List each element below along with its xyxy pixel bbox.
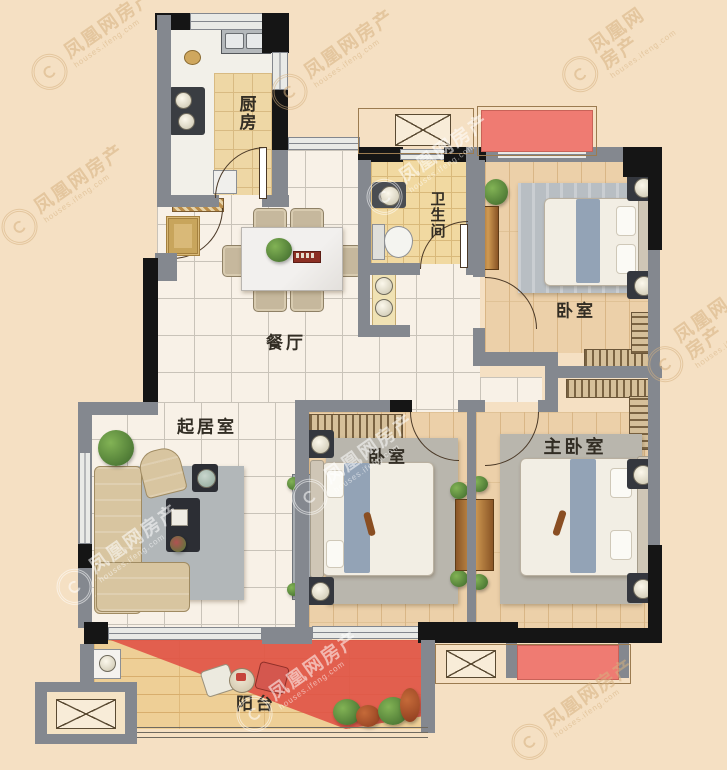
table-plant bbox=[266, 238, 292, 262]
wall bbox=[648, 147, 662, 250]
balcony-plant-autumn bbox=[356, 705, 380, 727]
wall bbox=[295, 412, 309, 628]
bath-washbasin bbox=[380, 186, 400, 206]
watermark-domain: houses.ifeng.com bbox=[42, 158, 133, 225]
bedroom-middle-headboard bbox=[310, 460, 324, 578]
wall bbox=[358, 325, 410, 337]
watermark-logo-icon bbox=[504, 717, 554, 767]
pillow bbox=[610, 530, 632, 560]
stove-burner-2 bbox=[178, 113, 195, 130]
watermark-brand: 凤凰网房产 bbox=[31, 141, 128, 218]
wall bbox=[648, 250, 660, 365]
wall bbox=[143, 258, 158, 412]
kitchen-sink-basin-left bbox=[225, 33, 244, 49]
sofa-chaise bbox=[96, 562, 190, 612]
tray-cups bbox=[296, 253, 316, 258]
window bbox=[272, 52, 288, 90]
stove-burner-1 bbox=[175, 92, 192, 109]
wall bbox=[358, 263, 420, 275]
watermark-logo-icon bbox=[555, 49, 605, 99]
watermark: 凤凰网房产houses.ifeng.com bbox=[552, 0, 679, 104]
pillow bbox=[616, 244, 636, 274]
wall bbox=[467, 412, 476, 628]
window bbox=[288, 137, 360, 150]
living-plant bbox=[98, 430, 134, 466]
wall bbox=[84, 622, 108, 644]
master-blanket bbox=[570, 459, 596, 573]
washing-machine-door bbox=[99, 655, 116, 672]
wall bbox=[390, 400, 412, 412]
coffee-table-tray bbox=[171, 509, 188, 526]
room-label-master: 主卧室 bbox=[544, 433, 607, 459]
wall bbox=[358, 160, 371, 275]
flower-bed bbox=[481, 110, 593, 152]
corridor-pocket-floor bbox=[480, 377, 542, 402]
wall bbox=[538, 400, 558, 412]
ac-unit-box bbox=[446, 650, 496, 678]
nightstand-lamp bbox=[311, 582, 330, 601]
balcony-plant-autumn bbox=[400, 688, 420, 722]
balcony-sliding-door bbox=[108, 627, 262, 640]
wall bbox=[157, 195, 219, 207]
niche-basin-2 bbox=[375, 299, 393, 317]
wall bbox=[458, 400, 485, 412]
wall bbox=[556, 366, 662, 378]
room-label-living: 起居室 bbox=[177, 413, 237, 438]
window bbox=[190, 13, 264, 30]
balcony-table-items bbox=[236, 673, 246, 681]
wall bbox=[157, 15, 171, 197]
wall bbox=[272, 150, 288, 197]
room-label-balcony: 阳台 bbox=[236, 690, 276, 715]
entry-rug bbox=[166, 216, 200, 256]
niche-basin-1 bbox=[375, 277, 393, 295]
side-table-top bbox=[197, 469, 216, 488]
pillow bbox=[326, 470, 344, 498]
plant bbox=[450, 570, 468, 587]
kitchen-bowl bbox=[184, 50, 201, 65]
wall bbox=[514, 628, 660, 643]
coffee-table-plant bbox=[170, 536, 186, 552]
wall bbox=[648, 365, 660, 545]
watermark-logo-icon bbox=[0, 202, 45, 252]
window bbox=[79, 452, 91, 544]
room-label-bedroom-middle: 卧室 bbox=[368, 443, 408, 468]
wall bbox=[473, 160, 485, 277]
wall bbox=[78, 544, 92, 568]
room-label-kitchen: 厨房 bbox=[234, 95, 259, 131]
watermark: 凤凰网房产houses.ifeng.com bbox=[0, 138, 136, 252]
wall bbox=[272, 90, 288, 150]
pillow bbox=[616, 206, 636, 236]
flower-bed bbox=[517, 645, 619, 680]
wall bbox=[262, 627, 312, 644]
watermark: 凤凰网房产houses.ifeng.com bbox=[24, 0, 165, 97]
wall bbox=[155, 253, 177, 281]
wall bbox=[262, 13, 289, 53]
room-label-bathroom: 卫生间 bbox=[427, 191, 448, 239]
bedroom-north-plant bbox=[484, 179, 508, 205]
ac-unit-box bbox=[56, 699, 116, 729]
room-label-bedroom-north: 卧室 bbox=[556, 297, 596, 322]
nightstand-lamp bbox=[311, 435, 330, 454]
window bbox=[312, 626, 420, 639]
wall bbox=[295, 400, 393, 412]
bedroom-north-blanket bbox=[576, 199, 600, 283]
wall bbox=[421, 640, 435, 733]
ac-unit-box bbox=[395, 114, 451, 146]
floor-plan: 厨房 卫生间 餐厅 卧室 起居室 卧室 主卧室 阳台 凤凰网房产houses.i… bbox=[0, 0, 727, 770]
dining-table bbox=[241, 227, 343, 291]
balcony-railing bbox=[88, 727, 428, 741]
room-label-dining: 餐厅 bbox=[266, 329, 306, 354]
watermark-logo-icon bbox=[24, 47, 74, 97]
pillow bbox=[326, 540, 344, 568]
plant bbox=[450, 482, 468, 499]
